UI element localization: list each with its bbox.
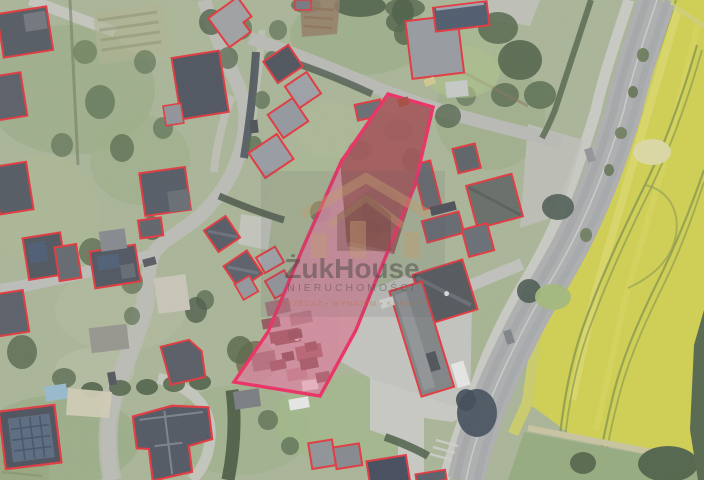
- svg-text:ŻukHouse: ŻukHouse: [284, 253, 419, 284]
- svg-text:SPRZEDAŻ • WYNAJEM • KREDYTY: SPRZEDAŻ • WYNAJEM • KREDYTY: [275, 299, 430, 308]
- svg-text:NIERUCHOMOŚCI: NIERUCHOMOŚCI: [287, 281, 416, 294]
